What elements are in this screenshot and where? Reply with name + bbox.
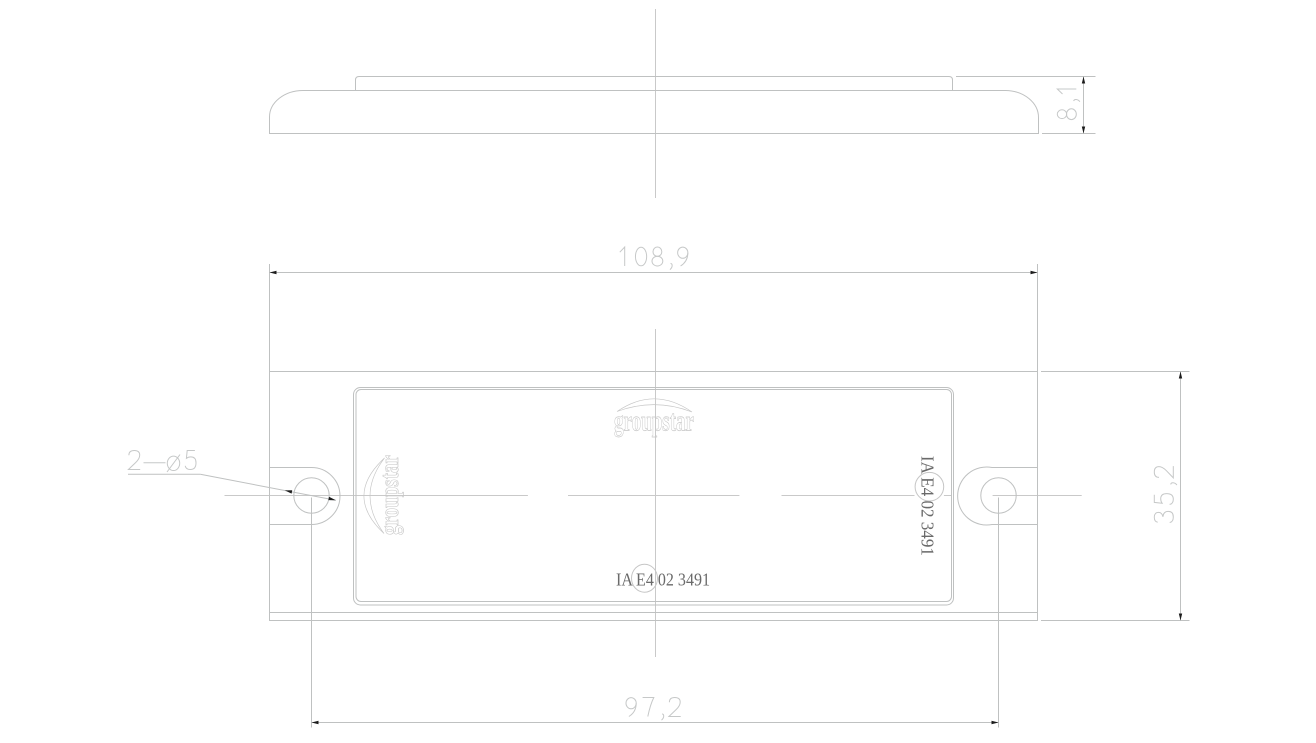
svg-text:groupstar: groupstar: [375, 455, 404, 535]
svg-text:groupstar: groupstar: [614, 405, 694, 438]
svg-text:IA E4 02 3491: IA E4 02 3491: [616, 569, 710, 589]
svg-text:IA E4 02 3491: IA E4 02 3491: [918, 456, 938, 556]
